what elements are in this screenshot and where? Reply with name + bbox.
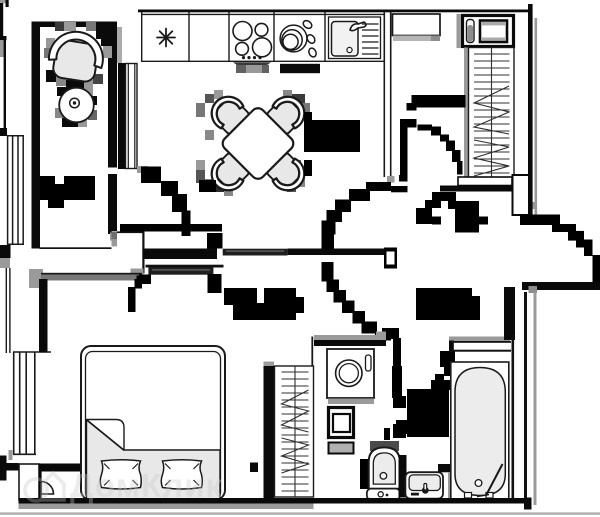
svg-text:ДомКлик: ДомКлик [70,467,223,504]
